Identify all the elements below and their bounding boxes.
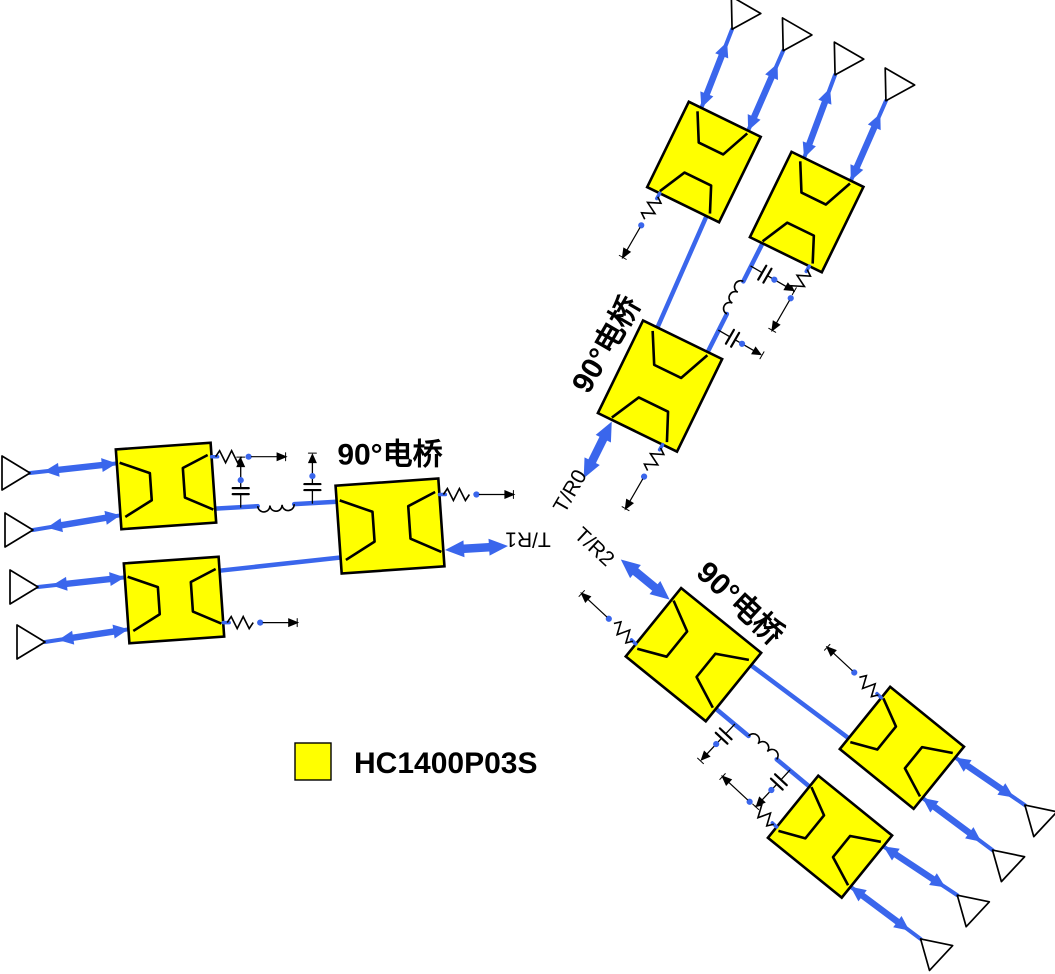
branch-left: 90°电桥T/R1 (2, 439, 551, 660)
signal-arrow-icon (790, 86, 845, 160)
hybrid-coupler-icon (336, 479, 445, 574)
antenna-icon (17, 625, 45, 659)
signal-arrow-icon (688, 40, 740, 111)
schematic-canvas: 90°电桥T/R190°电桥T/R090°电桥T/R2 HC1400P03S (0, 0, 1055, 974)
match-line (294, 502, 337, 504)
antenna-icon (946, 883, 990, 927)
hybrid-coupler-icon (116, 443, 216, 529)
signal-arrow-icon (880, 834, 948, 900)
legend-swatch (295, 743, 331, 780)
termination-resistor-icon (766, 263, 814, 335)
signal-arrow-icon (52, 572, 125, 591)
shunt-capacitor-icon (695, 719, 741, 766)
legend-label: HC1400P03S (354, 747, 537, 780)
branch-top: 90°电桥T/R0 (465, 0, 926, 565)
shunt-capacitor-icon (304, 453, 320, 503)
antenna-icon (820, 42, 863, 83)
shunt-capacitor-icon (715, 323, 766, 362)
antenna-icon (717, 0, 760, 38)
hybrid-coupler-icon (647, 102, 761, 222)
hybrid-coupler-icon (750, 152, 864, 272)
feed-network: 90°电桥T/R190°电桥T/R090°电桥T/R2 (2, 0, 1055, 974)
signal-arrow-icon (847, 877, 913, 940)
direct-line (220, 558, 341, 571)
termination-resistor-icon (619, 442, 667, 514)
shunt-capacitor-icon (750, 765, 796, 812)
termination-resistor-icon (576, 588, 640, 649)
hybrid-coupler-icon (768, 776, 892, 898)
signal-arrow-icon (952, 746, 1017, 808)
direct-line (751, 656, 848, 748)
legend: HC1400P03S (295, 743, 537, 780)
antenna-icon (10, 570, 38, 604)
termination-resistor-icon (822, 642, 886, 703)
shunt-capacitor-icon (233, 457, 249, 507)
match-line (706, 314, 729, 352)
tr-port-label: T/R1 (505, 528, 551, 551)
tr-port-arrow (445, 539, 508, 558)
hybrid-coupler-icon (124, 557, 224, 643)
match-line (777, 758, 810, 789)
tr-port-arrow (616, 551, 675, 608)
tr-port-label: T/R2 (570, 523, 619, 571)
termination-resistor-icon (212, 451, 288, 463)
shunt-capacitor-icon (747, 259, 798, 298)
antenna-icon (2, 456, 30, 490)
antenna-icon (871, 68, 914, 109)
match-line (716, 707, 749, 738)
series-inductor-icon (749, 730, 781, 761)
signal-arrow-icon (58, 625, 128, 645)
series-inductor-icon (258, 504, 294, 512)
signal-arrow-icon (47, 511, 120, 532)
antenna-icon (5, 513, 33, 547)
hybrid-coupler-icon (840, 687, 964, 809)
series-inductor-icon (720, 279, 745, 314)
signal-arrow-icon (839, 111, 892, 183)
schematic-page: 90°电桥T/R190°电桥T/R090°电桥T/R2 HC1400P03S (0, 0, 1055, 974)
termination-resistor-icon (223, 617, 299, 629)
signal-arrow-icon (44, 458, 117, 477)
direct-line (646, 216, 718, 327)
termination-resistor-icon (439, 489, 515, 501)
bridge-label: 90°电桥 (337, 439, 442, 472)
antenna-icon (768, 18, 811, 59)
match-line (215, 506, 258, 508)
termination-resistor-icon (617, 190, 665, 262)
branch-bottom: 90°电桥T/R2 (513, 442, 1055, 974)
signal-arrow-icon (919, 788, 985, 851)
signal-arrow-icon (737, 61, 790, 133)
